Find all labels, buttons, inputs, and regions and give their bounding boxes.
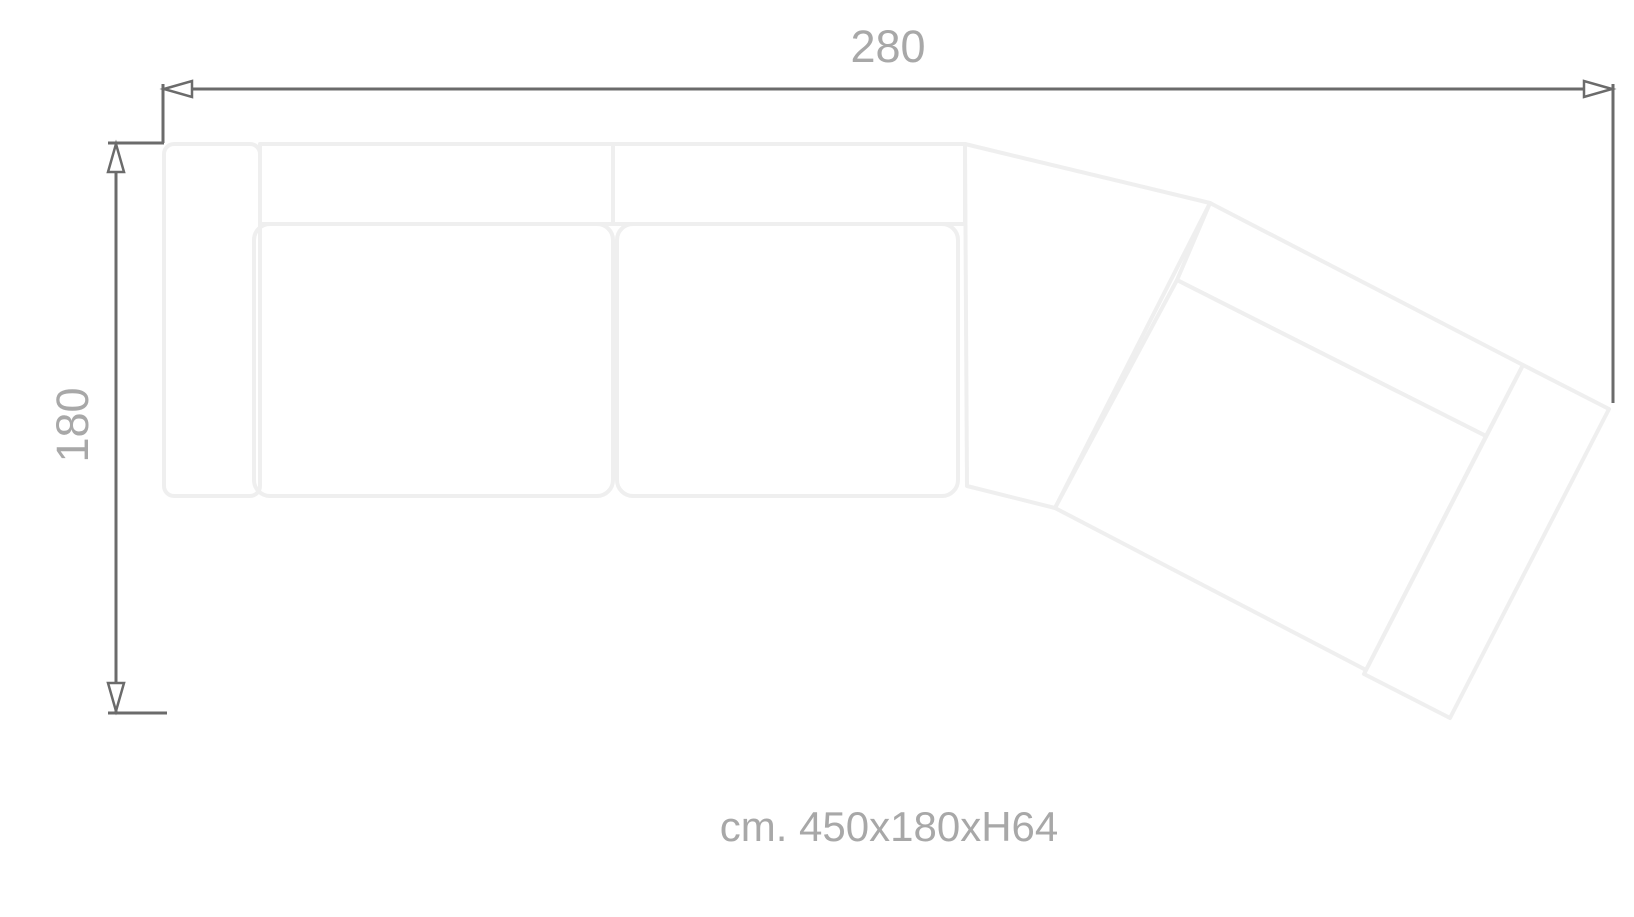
sofa-corner-wedge	[965, 144, 1210, 508]
sofa-left-armrest	[164, 144, 260, 496]
depth-dimension	[108, 143, 167, 713]
size-caption: cm. 450x180xH64	[720, 803, 1059, 850]
arrow-down-icon	[108, 683, 124, 711]
arrow-right-icon	[1584, 81, 1612, 97]
sofa-outline	[164, 144, 1609, 718]
arrow-up-icon	[108, 144, 124, 172]
sofa-backrest-1	[260, 144, 613, 224]
sofa-seat-cushion-1	[254, 224, 613, 496]
sofa-backrest-2	[613, 144, 965, 224]
sofa-right-armrest-angled	[1364, 365, 1609, 718]
sofa-dimension-diagram: 280 180 cm. 450x180xH64	[0, 0, 1634, 917]
width-dimension	[163, 81, 1613, 403]
sofa-seat-cushion-angled	[1055, 280, 1486, 670]
sofa-backrest-angled	[1177, 203, 1523, 436]
arrow-left-icon	[164, 81, 192, 97]
sofa-seat-cushion-2	[617, 224, 958, 496]
width-dimension-label: 280	[850, 21, 925, 72]
depth-dimension-label: 180	[47, 387, 98, 462]
